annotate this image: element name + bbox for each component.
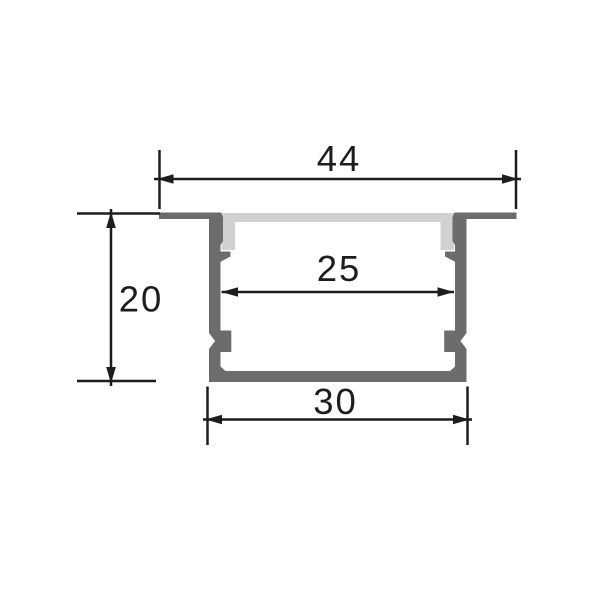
svg-text:20: 20: [119, 279, 164, 320]
svg-text:25: 25: [317, 248, 362, 289]
svg-text:44: 44: [317, 138, 362, 179]
svg-text:30: 30: [313, 381, 358, 422]
